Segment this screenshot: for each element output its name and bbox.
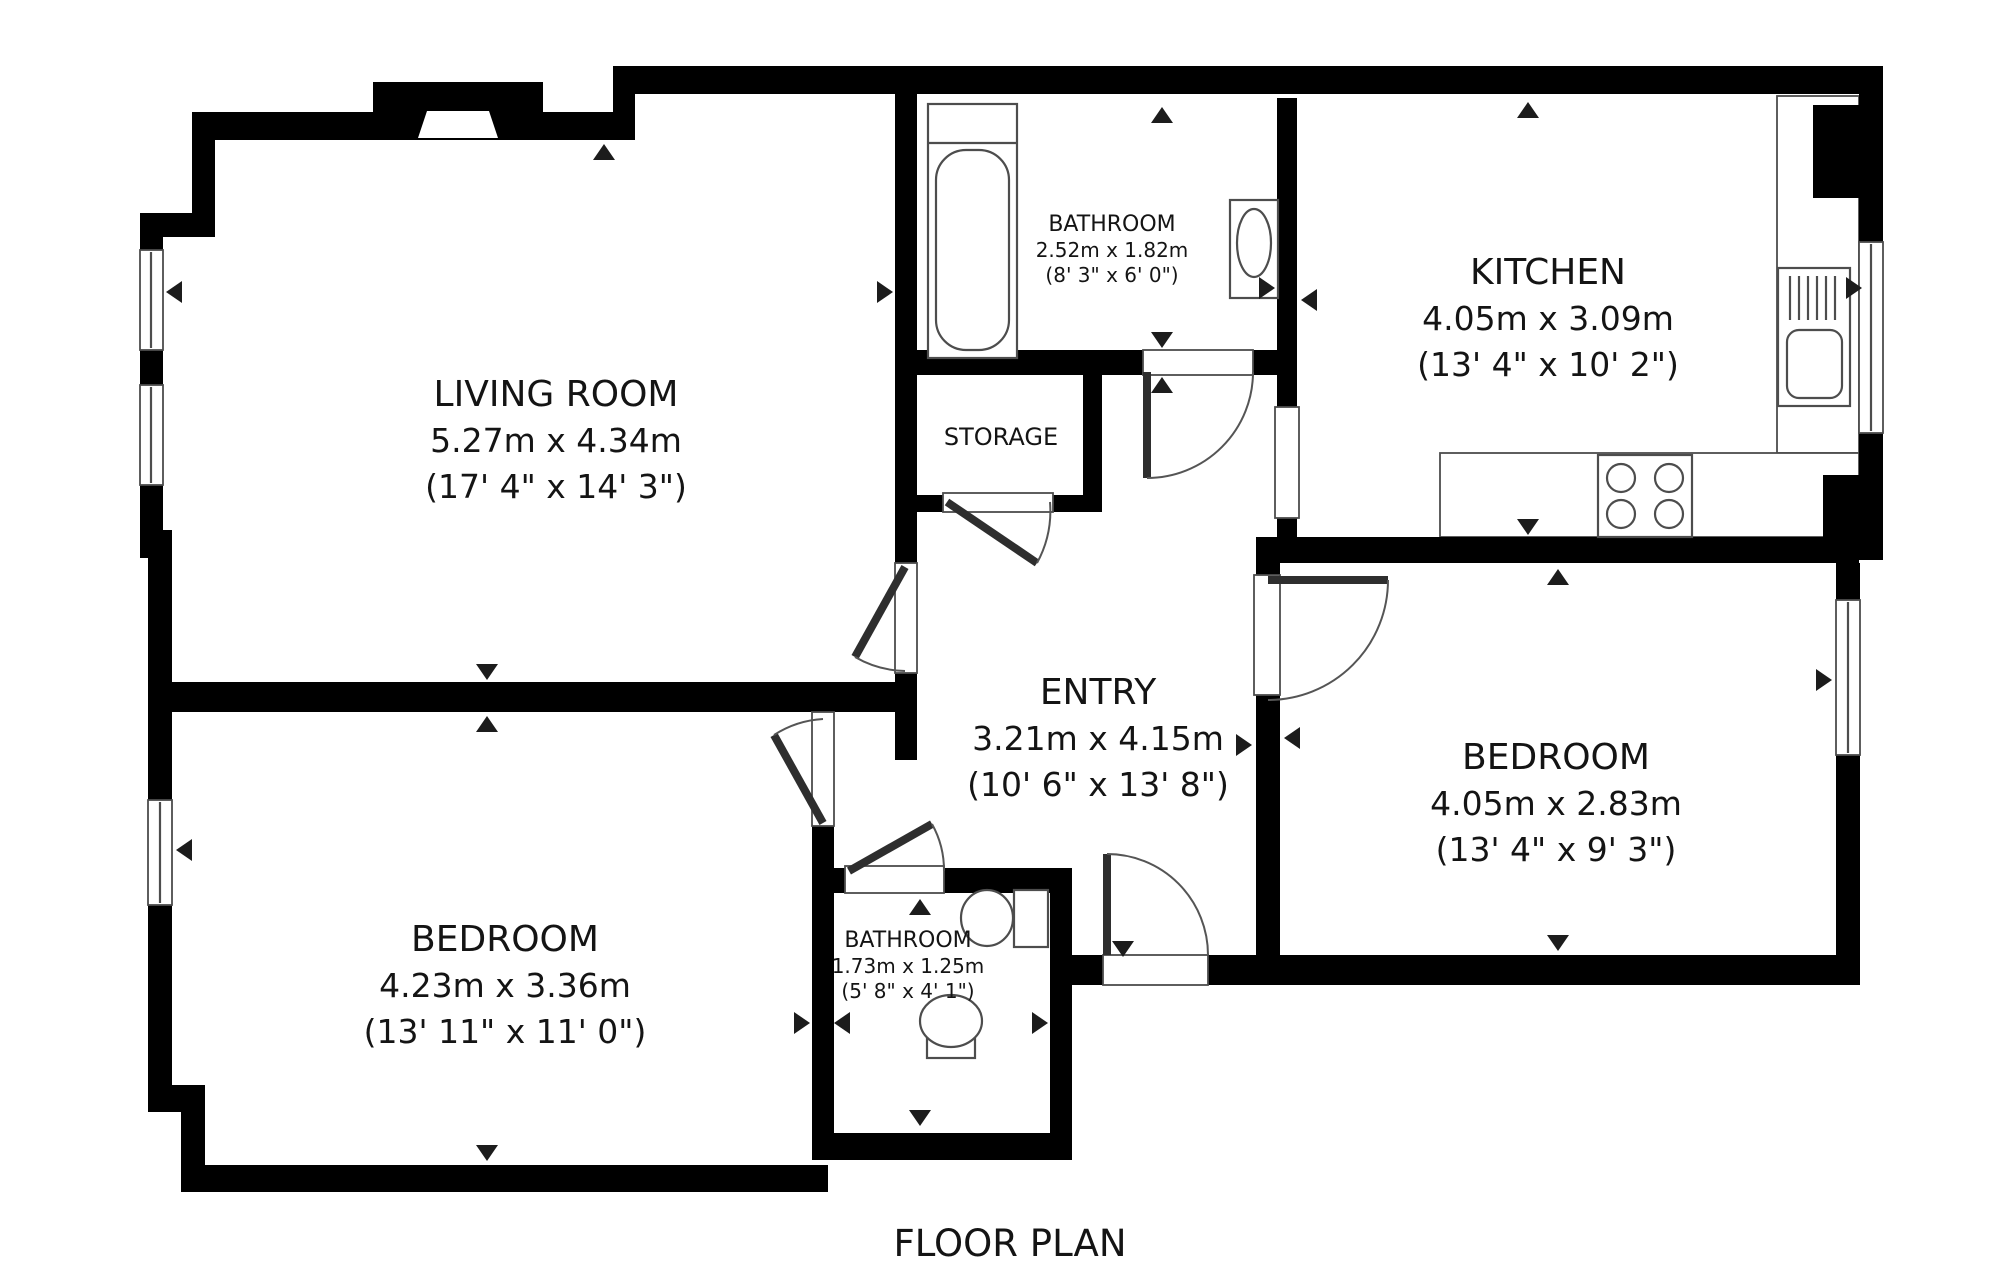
room-size-imperial: (10' 6" x 13' 8") — [967, 762, 1229, 808]
kitchen-sink-icon — [1778, 268, 1850, 406]
chimney-notch — [418, 111, 498, 138]
room-size-metric: 2.52m x 1.82m — [1036, 238, 1189, 263]
room-size-imperial: (13' 11" x 11' 0") — [364, 1009, 647, 1055]
room-size-metric: 1.73m x 1.25m — [832, 954, 985, 979]
room-label-entry: ENTRY 3.21m x 4.15m (10' 6" x 13' 8") — [967, 670, 1229, 808]
doorway-kitchen — [1275, 407, 1299, 518]
room-label-storage: STORAGE — [944, 423, 1058, 451]
room-name: BATHROOM — [1036, 212, 1189, 238]
window-living-1 — [140, 250, 163, 350]
room-name: BEDROOM — [364, 917, 647, 963]
floor-plan: LIVING ROOM 5.27m x 4.34m (17' 4" x 14' … — [0, 0, 2000, 1285]
room-name: KITCHEN — [1417, 250, 1679, 296]
room-size-metric: 4.05m x 2.83m — [1430, 781, 1682, 827]
room-name: LIVING ROOM — [425, 372, 687, 418]
room-name: BEDROOM — [1430, 735, 1682, 781]
stove-icon — [1598, 455, 1692, 537]
room-size-imperial: (5' 8" x 4' 1") — [832, 979, 985, 1004]
window-bedroom-left — [148, 800, 172, 905]
window-living-2 — [140, 385, 163, 485]
door-bedroom-right — [1268, 580, 1388, 700]
bathroom-top-sink-icon — [1230, 200, 1278, 298]
room-label-bathroom-top: BATHROOM 2.52m x 1.82m (8' 3" x 6' 0") — [1036, 212, 1189, 288]
room-label-kitchen: KITCHEN 4.05m x 3.09m (13' 4" x 10' 2") — [1417, 250, 1679, 388]
room-size-metric: 3.21m x 4.15m — [967, 716, 1229, 762]
room-name: ENTRY — [967, 670, 1229, 716]
room-size-imperial: (8' 3" x 6' 0") — [1036, 263, 1189, 288]
plan-title: FLOOR PLAN — [893, 1222, 1126, 1265]
doorway-entry-front — [1103, 955, 1208, 985]
room-label-bathroom-bottom: BATHROOM 1.73m x 1.25m (5' 8" x 4' 1") — [832, 928, 985, 1004]
doorway-bathroom-top — [1143, 350, 1253, 375]
room-size-imperial: (13' 4" x 9' 3") — [1430, 827, 1682, 873]
doorway-bedroom-right — [1254, 575, 1280, 695]
room-label-bedroom-right: BEDROOM 4.05m x 2.83m (13' 4" x 9' 3") — [1430, 735, 1682, 873]
door-entry-front — [1107, 854, 1208, 955]
room-label-living-room: LIVING ROOM 5.27m x 4.34m (17' 4" x 14' … — [425, 372, 687, 510]
room-size-imperial: (17' 4" x 14' 3") — [425, 464, 687, 510]
bathtub-icon — [928, 104, 1017, 358]
room-size-imperial: (13' 4" x 10' 2") — [1417, 342, 1679, 388]
room-name: BATHROOM — [832, 928, 985, 954]
room-size-metric: 4.23m x 3.36m — [364, 963, 647, 1009]
door-bathroom-bottom — [849, 824, 944, 871]
room-label-bedroom-left: BEDROOM 4.23m x 3.36m (13' 11" x 11' 0") — [364, 917, 647, 1055]
room-size-metric: 4.05m x 3.09m — [1417, 296, 1679, 342]
doorway-bathroom-bottom — [845, 866, 944, 893]
floor-plan-drawing — [0, 0, 2000, 1285]
window-kitchen — [1859, 242, 1883, 433]
window-bedroom-right — [1836, 600, 1860, 755]
room-size-metric: 5.27m x 4.34m — [425, 418, 687, 464]
bathroom-bottom-sink-icon — [920, 995, 982, 1058]
